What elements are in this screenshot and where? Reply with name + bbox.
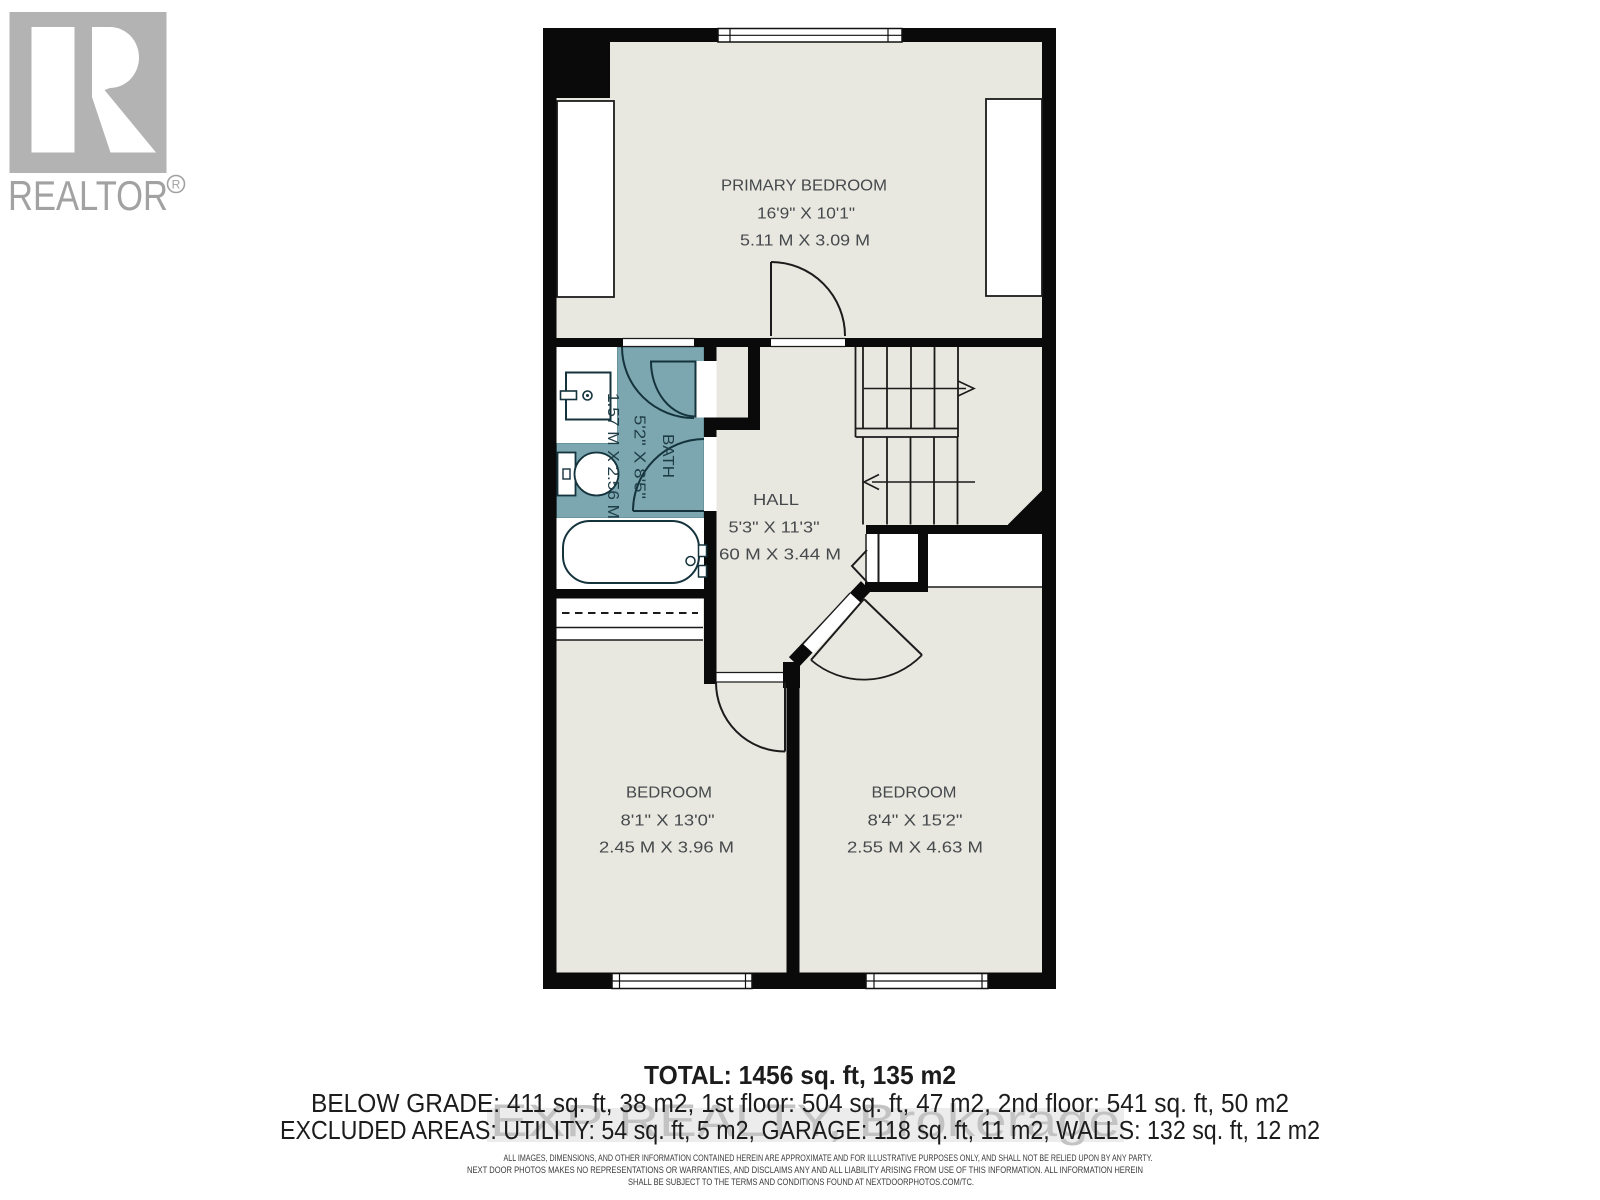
svg-text:TOTAL: 1456 sq. ft, 135 m2: TOTAL: 1456 sq. ft, 135 m2 — [644, 1060, 956, 1090]
svg-text:1.57 M X 2.56 M: 1.57 M X 2.56 M — [604, 393, 621, 519]
svg-text:BATH: BATH — [659, 434, 676, 478]
svg-text:16'9" X 10'1": 16'9" X 10'1" — [757, 206, 855, 223]
svg-text:5'2" X 8'5": 5'2" X 8'5" — [631, 415, 648, 499]
svg-text:ALL IMAGES, DIMENSIONS, AND OT: ALL IMAGES, DIMENSIONS, AND OTHER INFORM… — [504, 1153, 1153, 1164]
svg-text:BELOW GRADE: 411 sq. ft, 38 m2: BELOW GRADE: 411 sq. ft, 38 m2, 1st floo… — [311, 1090, 1289, 1118]
svg-text:REALTOR: REALTOR — [8, 172, 168, 219]
svg-text:HALL: HALL — [753, 492, 799, 509]
svg-text:8'4" X 15'2": 8'4" X 15'2" — [868, 813, 963, 830]
svg-text:60 M X 3.44 M: 60 M X 3.44 M — [719, 547, 841, 564]
svg-text:R: R — [172, 178, 181, 192]
svg-text:8'1" X 13'0": 8'1" X 13'0" — [621, 813, 715, 830]
svg-text:NEXT DOOR PHOTOS MAKES NO REPR: NEXT DOOR PHOTOS MAKES NO REPRESENTATION… — [467, 1165, 1143, 1176]
svg-text:BEDROOM: BEDROOM — [872, 785, 957, 802]
svg-text:2.45 M X 3.96 M: 2.45 M X 3.96 M — [599, 840, 734, 857]
svg-text:PRIMARY BEDROOM: PRIMARY BEDROOM — [721, 178, 887, 195]
svg-text:EXCLUDED AREAS: UTILITY: 54 sq: EXCLUDED AREAS: UTILITY: 54 sq. ft, 5 m2… — [280, 1117, 1320, 1145]
svg-text:SHALL BE SUBJECT TO THE TERMS: SHALL BE SUBJECT TO THE TERMS AND CONDIT… — [628, 1177, 974, 1188]
svg-text:BEDROOM: BEDROOM — [626, 785, 712, 802]
svg-text:5.11 M X 3.09 M: 5.11 M X 3.09 M — [740, 233, 870, 250]
svg-text:5'3" X 11'3": 5'3" X 11'3" — [729, 520, 820, 537]
svg-text:2.55 M X 4.63 M: 2.55 M X 4.63 M — [847, 840, 983, 857]
